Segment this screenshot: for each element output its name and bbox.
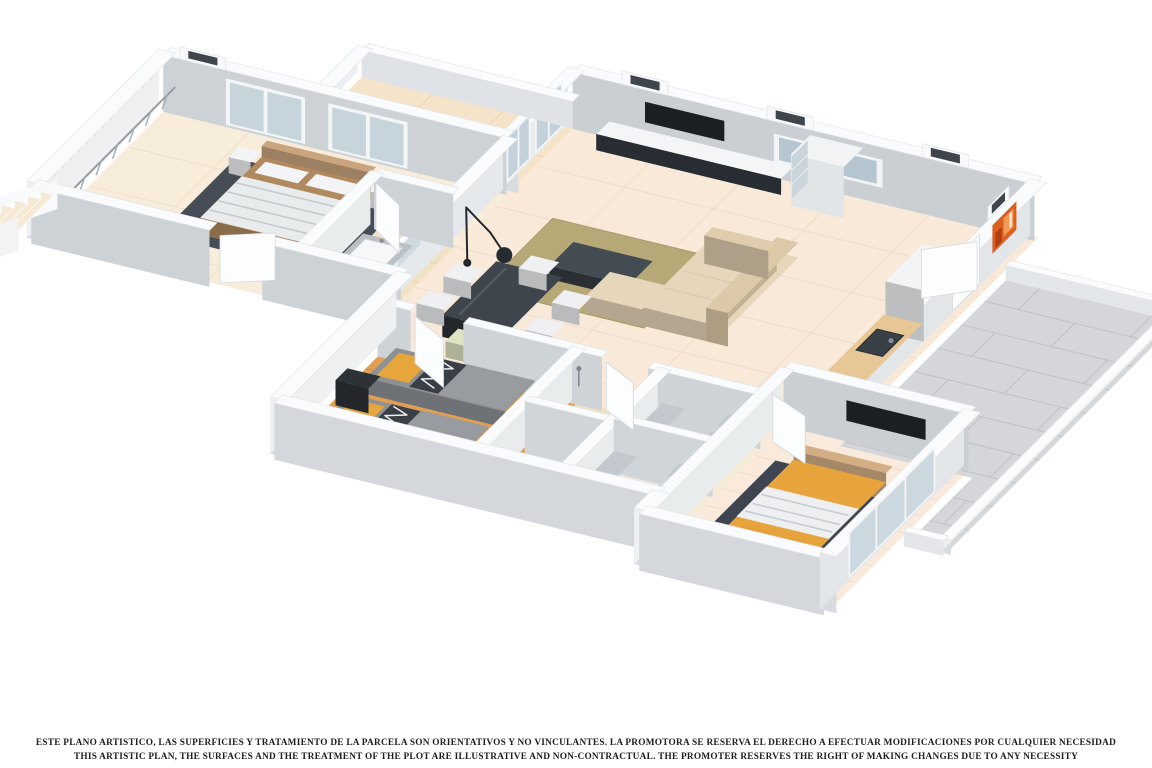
floor-lamp-shade	[496, 247, 512, 263]
bathroom1-faucet	[380, 239, 384, 243]
kitchen-faucet	[889, 338, 894, 343]
disclaimer-line-es: ESTE PLANO ARTISTICO, LAS SUPERFICIES Y …	[0, 736, 1152, 750]
bedroom1-glass-door	[370, 117, 404, 166]
bedroom1-glass-door	[268, 92, 302, 141]
entrance-door-leaf	[921, 242, 977, 299]
floor-plan-3d-svg	[0, 0, 1152, 768]
disclaimer: ESTE PLANO ARTISTICO, LAS SUPERFICIES Y …	[0, 736, 1152, 764]
painting-accent	[1010, 211, 1012, 229]
bedroom1-glass-door	[230, 83, 264, 132]
disclaimer-line-en: THIS ARTISTIC PLAN, THE SURFACES AND THE…	[0, 750, 1152, 764]
shower-head	[576, 366, 581, 371]
floor-plan-render: ESTE PLANO ARTISTICO, LAS SUPERFICIES Y …	[0, 0, 1152, 768]
bedroom1-door	[220, 233, 275, 283]
bedroom1-glass-door	[332, 107, 366, 156]
